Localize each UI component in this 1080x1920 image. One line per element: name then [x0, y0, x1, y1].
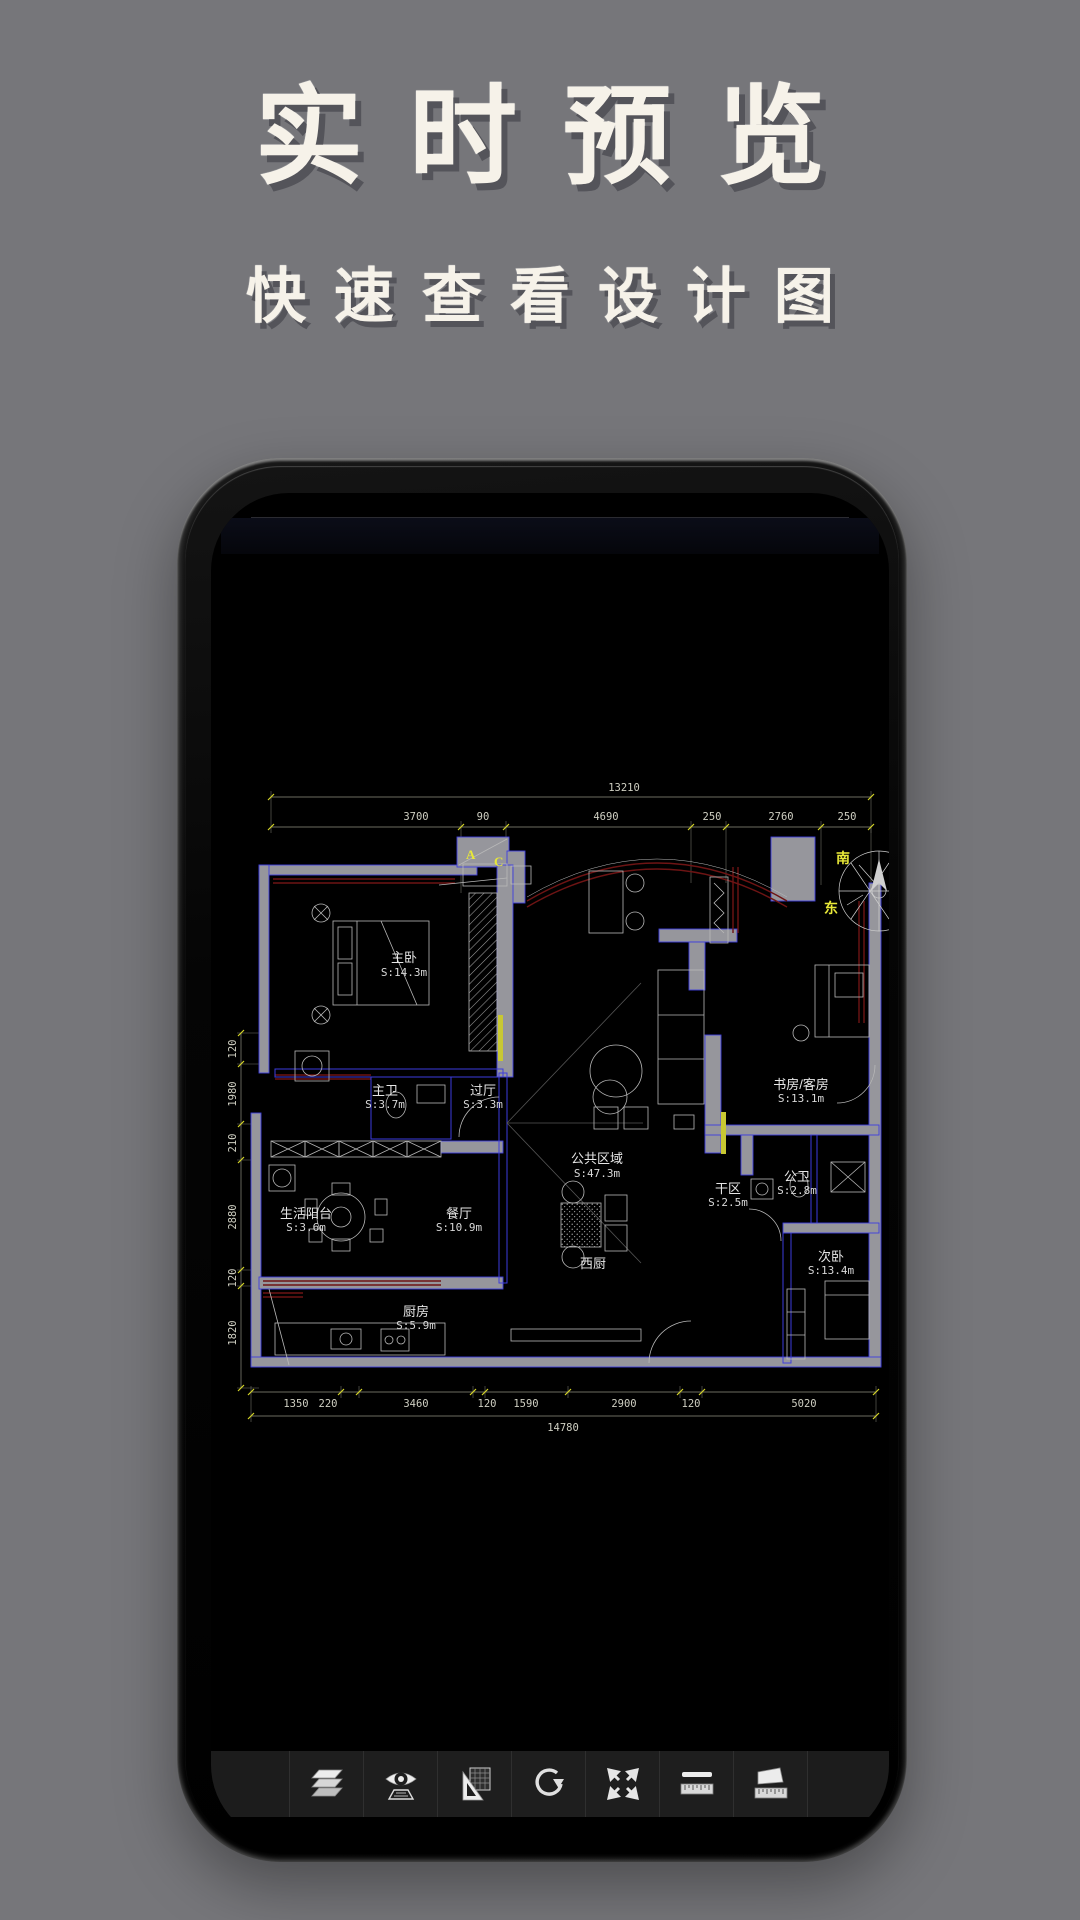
svg-text:书房/客房: 书房/客房	[773, 1077, 829, 1092]
svg-text:220: 220	[319, 1398, 338, 1410]
svg-text:1980: 1980	[227, 1081, 239, 1106]
svg-text:250: 250	[703, 811, 722, 823]
phone-bezel: 13210 3700 90 4690 250 2760 250 120 1980…	[185, 466, 899, 1854]
page-subtitle: 快速查看设计图	[0, 248, 1080, 335]
svg-text:S:13.1m: S:13.1m	[778, 1092, 825, 1105]
svg-text:3700: 3700	[403, 811, 428, 823]
svg-text:S:2.8m: S:2.8m	[777, 1184, 817, 1197]
svg-text:2880: 2880	[227, 1204, 239, 1229]
status-bar	[221, 518, 879, 554]
phone-screen: 13210 3700 90 4690 250 2760 250 120 1980…	[211, 493, 889, 1843]
svg-text:120: 120	[478, 1398, 497, 1410]
svg-text:S:47.3m: S:47.3m	[574, 1167, 621, 1180]
svg-text:干区: 干区	[715, 1181, 741, 1196]
expand-tool-button[interactable]	[586, 1751, 660, 1817]
svg-text:3460: 3460	[403, 1398, 428, 1410]
svg-text:250: 250	[838, 811, 857, 823]
layers-tool-button[interactable]	[289, 1751, 364, 1817]
marker-c: C	[494, 854, 503, 869]
set-square-icon	[458, 1766, 492, 1802]
svg-text:2900: 2900	[611, 1398, 636, 1410]
expand-arrows-icon	[605, 1766, 641, 1802]
svg-text:公卫: 公卫	[784, 1169, 810, 1184]
eye-projection-icon	[382, 1766, 420, 1802]
area-ruler-icon	[752, 1766, 790, 1802]
svg-text:S:3.6m: S:3.6m	[286, 1221, 326, 1234]
svg-text:90: 90	[477, 811, 490, 823]
svg-text:S:2.5m: S:2.5m	[708, 1196, 748, 1209]
svg-text:S:10.9m: S:10.9m	[436, 1221, 483, 1234]
svg-text:S:13.4m: S:13.4m	[808, 1264, 855, 1277]
svg-text:公共区域: 公共区域	[571, 1151, 623, 1166]
arch-trim-line	[527, 859, 787, 897]
svg-text:14780: 14780	[547, 1422, 579, 1434]
floorplan-canvas[interactable]: 13210 3700 90 4690 250 2760 250 120 1980…	[211, 733, 889, 1443]
ruler-tool-button[interactable]	[438, 1751, 512, 1817]
svg-text:厨房: 厨房	[403, 1304, 429, 1319]
phone-mockup: 13210 3700 90 4690 250 2760 250 120 1980…	[177, 458, 907, 1862]
svg-text:S:3.7m: S:3.7m	[365, 1098, 405, 1111]
svg-text:西厨: 西厨	[580, 1256, 606, 1271]
compass-east-label: 东	[824, 900, 838, 916]
svg-text:餐厅: 餐厅	[446, 1206, 472, 1221]
svg-text:过厅: 过厅	[470, 1083, 496, 1098]
view-tool-button[interactable]	[364, 1751, 438, 1817]
svg-text:次卧: 次卧	[818, 1249, 844, 1264]
rotate-icon	[530, 1766, 568, 1802]
svg-text:120: 120	[227, 1040, 239, 1059]
svg-text:S:14.3m: S:14.3m	[381, 966, 428, 979]
svg-text:5020: 5020	[791, 1398, 816, 1410]
distance-ruler-icon	[678, 1767, 716, 1801]
rotate-tool-button[interactable]	[512, 1751, 586, 1817]
svg-text:主卫: 主卫	[372, 1083, 398, 1098]
svg-text:210: 210	[227, 1134, 239, 1153]
viewer-toolbar	[211, 1751, 889, 1817]
marker-a: A	[466, 847, 476, 862]
svg-text:13210: 13210	[608, 782, 640, 794]
compass-south-label: 南	[836, 850, 850, 866]
interior-partitions	[275, 1069, 817, 1363]
svg-text:S:3.3m: S:3.3m	[463, 1098, 503, 1111]
page-title: 实时预览	[0, 78, 1080, 197]
svg-text:1350: 1350	[283, 1398, 308, 1410]
svg-text:1590: 1590	[513, 1398, 538, 1410]
svg-text:1820: 1820	[227, 1320, 239, 1345]
dimension-labels: 13210 3700 90 4690 250 2760 250 120 1980…	[227, 782, 856, 1434]
svg-text:4690: 4690	[593, 811, 618, 823]
svg-text:S:5.9m: S:5.9m	[396, 1319, 436, 1332]
svg-text:120: 120	[682, 1398, 701, 1410]
svg-text:2760: 2760	[768, 811, 793, 823]
measure-distance-tool-button[interactable]	[660, 1751, 734, 1817]
svg-text:主卧: 主卧	[391, 950, 417, 965]
svg-text:120: 120	[227, 1269, 239, 1288]
measure-area-tool-button[interactable]	[734, 1751, 808, 1817]
layers-icon	[309, 1767, 345, 1801]
svg-text:生活阳台: 生活阳台	[280, 1206, 332, 1221]
